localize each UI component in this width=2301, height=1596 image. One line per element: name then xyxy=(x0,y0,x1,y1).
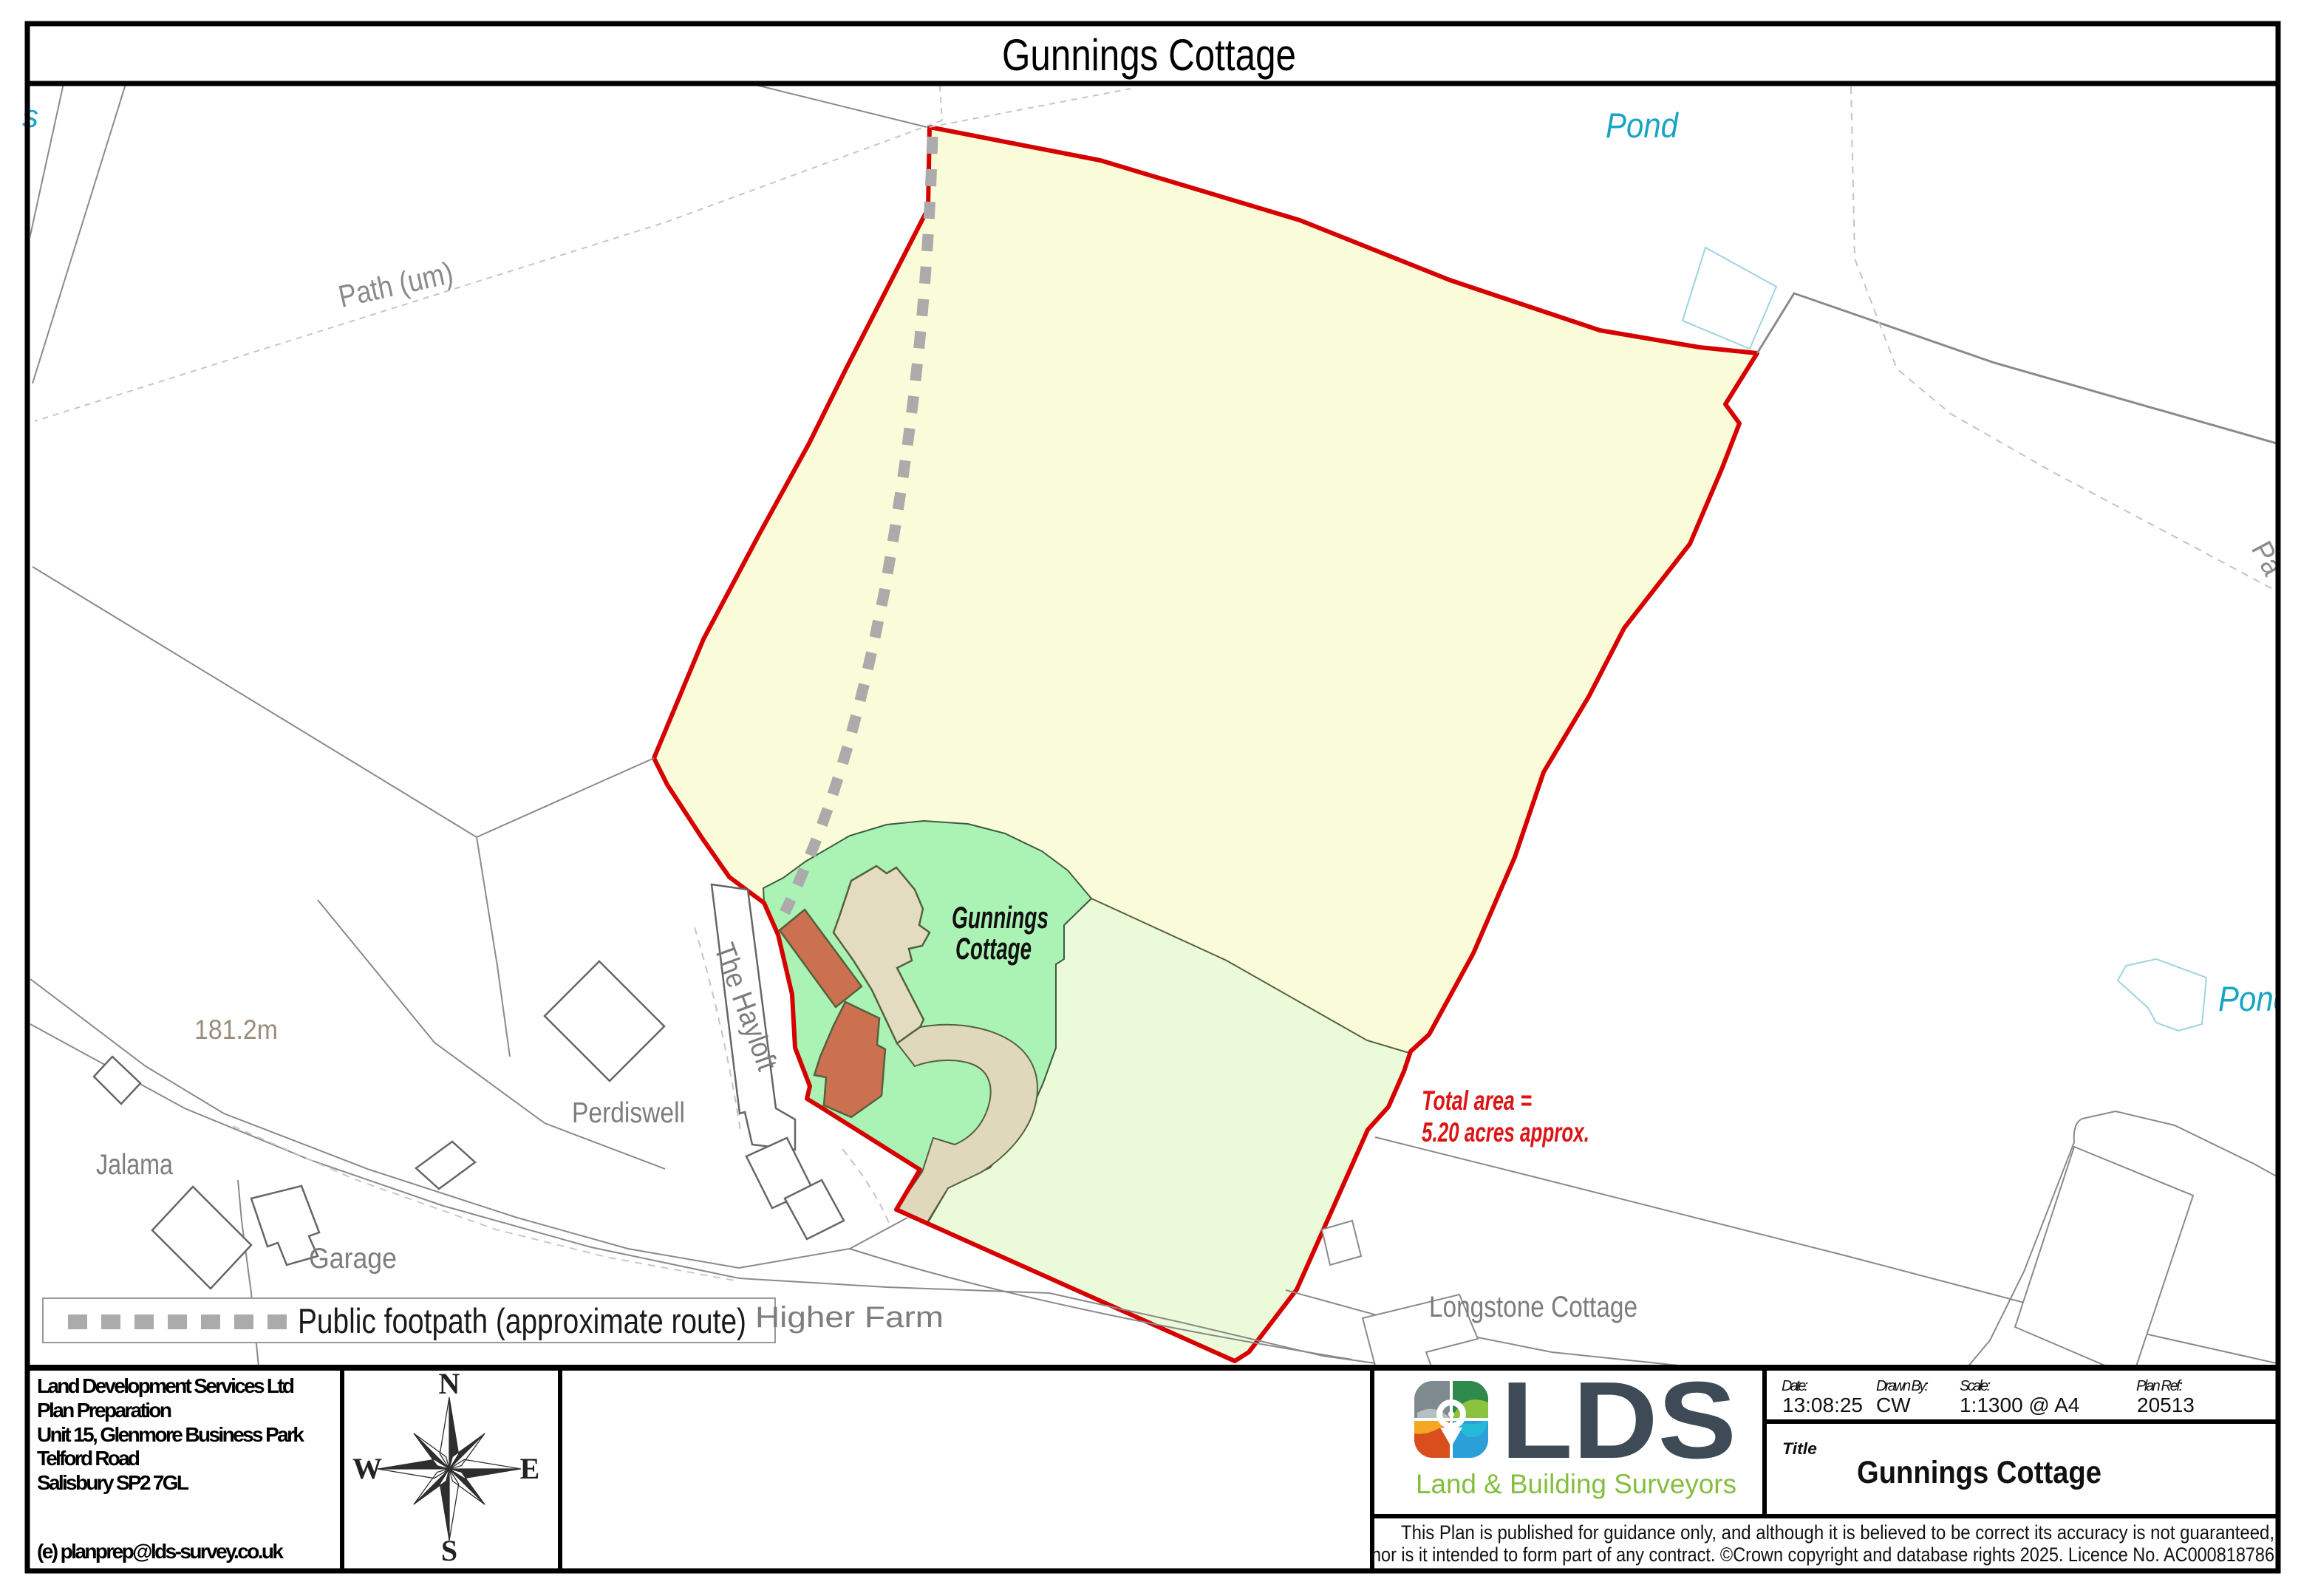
svg-text:5.20 acres approx.: 5.20 acres approx. xyxy=(1422,1117,1589,1147)
svg-text:N: N xyxy=(439,1367,460,1400)
svg-text:Salisbury SP2 7GL: Salisbury SP2 7GL xyxy=(37,1471,189,1494)
svg-text:Scale:: Scale: xyxy=(1960,1378,1991,1394)
svg-text:S: S xyxy=(441,1534,457,1567)
svg-text:Drawn By:: Drawn By: xyxy=(1876,1378,1929,1394)
svg-text:Plan Ref:: Plan Ref: xyxy=(2136,1378,2183,1394)
svg-text:181.2m: 181.2m xyxy=(194,1014,278,1045)
svg-text:Gunnings Cottage: Gunnings Cottage xyxy=(1002,30,1296,80)
svg-text:s: s xyxy=(22,98,38,134)
svg-text:Telford Road: Telford Road xyxy=(37,1447,140,1470)
svg-text:20513: 20513 xyxy=(2137,1394,2195,1416)
svg-text:Perdiswell: Perdiswell xyxy=(572,1097,685,1129)
svg-text:Land Development Services Ltd: Land Development Services Ltd xyxy=(37,1374,295,1397)
svg-text:Garage: Garage xyxy=(309,1243,397,1275)
svg-text:Higher Farm: Higher Farm xyxy=(755,1301,944,1334)
svg-text:This Plan is published for gui: This Plan is published for guidance only… xyxy=(1401,1521,2274,1544)
svg-text:(e) planprep@lds-survey.co.uk: (e) planprep@lds-survey.co.uk xyxy=(37,1540,284,1563)
svg-text:Title: Title xyxy=(1782,1439,1817,1458)
svg-text:Longstone Cottage: Longstone Cottage xyxy=(1429,1291,1637,1323)
svg-text:1:1300 @ A4: 1:1300 @ A4 xyxy=(1960,1394,2079,1416)
svg-text:Public footpath (approximate r: Public footpath (approximate route) xyxy=(298,1301,746,1340)
svg-text:Cottage: Cottage xyxy=(955,931,1032,966)
svg-text:Gunnings: Gunnings xyxy=(952,900,1049,935)
svg-text:Date:: Date: xyxy=(1782,1378,1808,1394)
svg-text:Gunnings Cottage: Gunnings Cottage xyxy=(1857,1455,2101,1490)
svg-text:13:08:25: 13:08:25 xyxy=(1782,1394,1863,1416)
svg-text:Jalama: Jalama xyxy=(96,1149,173,1181)
svg-text:CW: CW xyxy=(1876,1394,1911,1416)
svg-text:nor is it intended to form par: nor is it intended to form part of any c… xyxy=(1371,1544,2274,1566)
svg-text:Pond: Pond xyxy=(1606,106,1680,145)
svg-text:W: W xyxy=(352,1452,382,1485)
svg-text:E: E xyxy=(520,1452,540,1485)
svg-text:Plan Preparation: Plan Preparation xyxy=(37,1399,172,1422)
svg-text:Land & Building Surveyors: Land & Building Surveyors xyxy=(1416,1469,1736,1499)
svg-text:LDS: LDS xyxy=(1501,1360,1736,1481)
svg-text:Total area =: Total area = xyxy=(1422,1085,1532,1116)
svg-text:Unit 15, Glenmore Business Par: Unit 15, Glenmore Business Park xyxy=(37,1423,304,1446)
